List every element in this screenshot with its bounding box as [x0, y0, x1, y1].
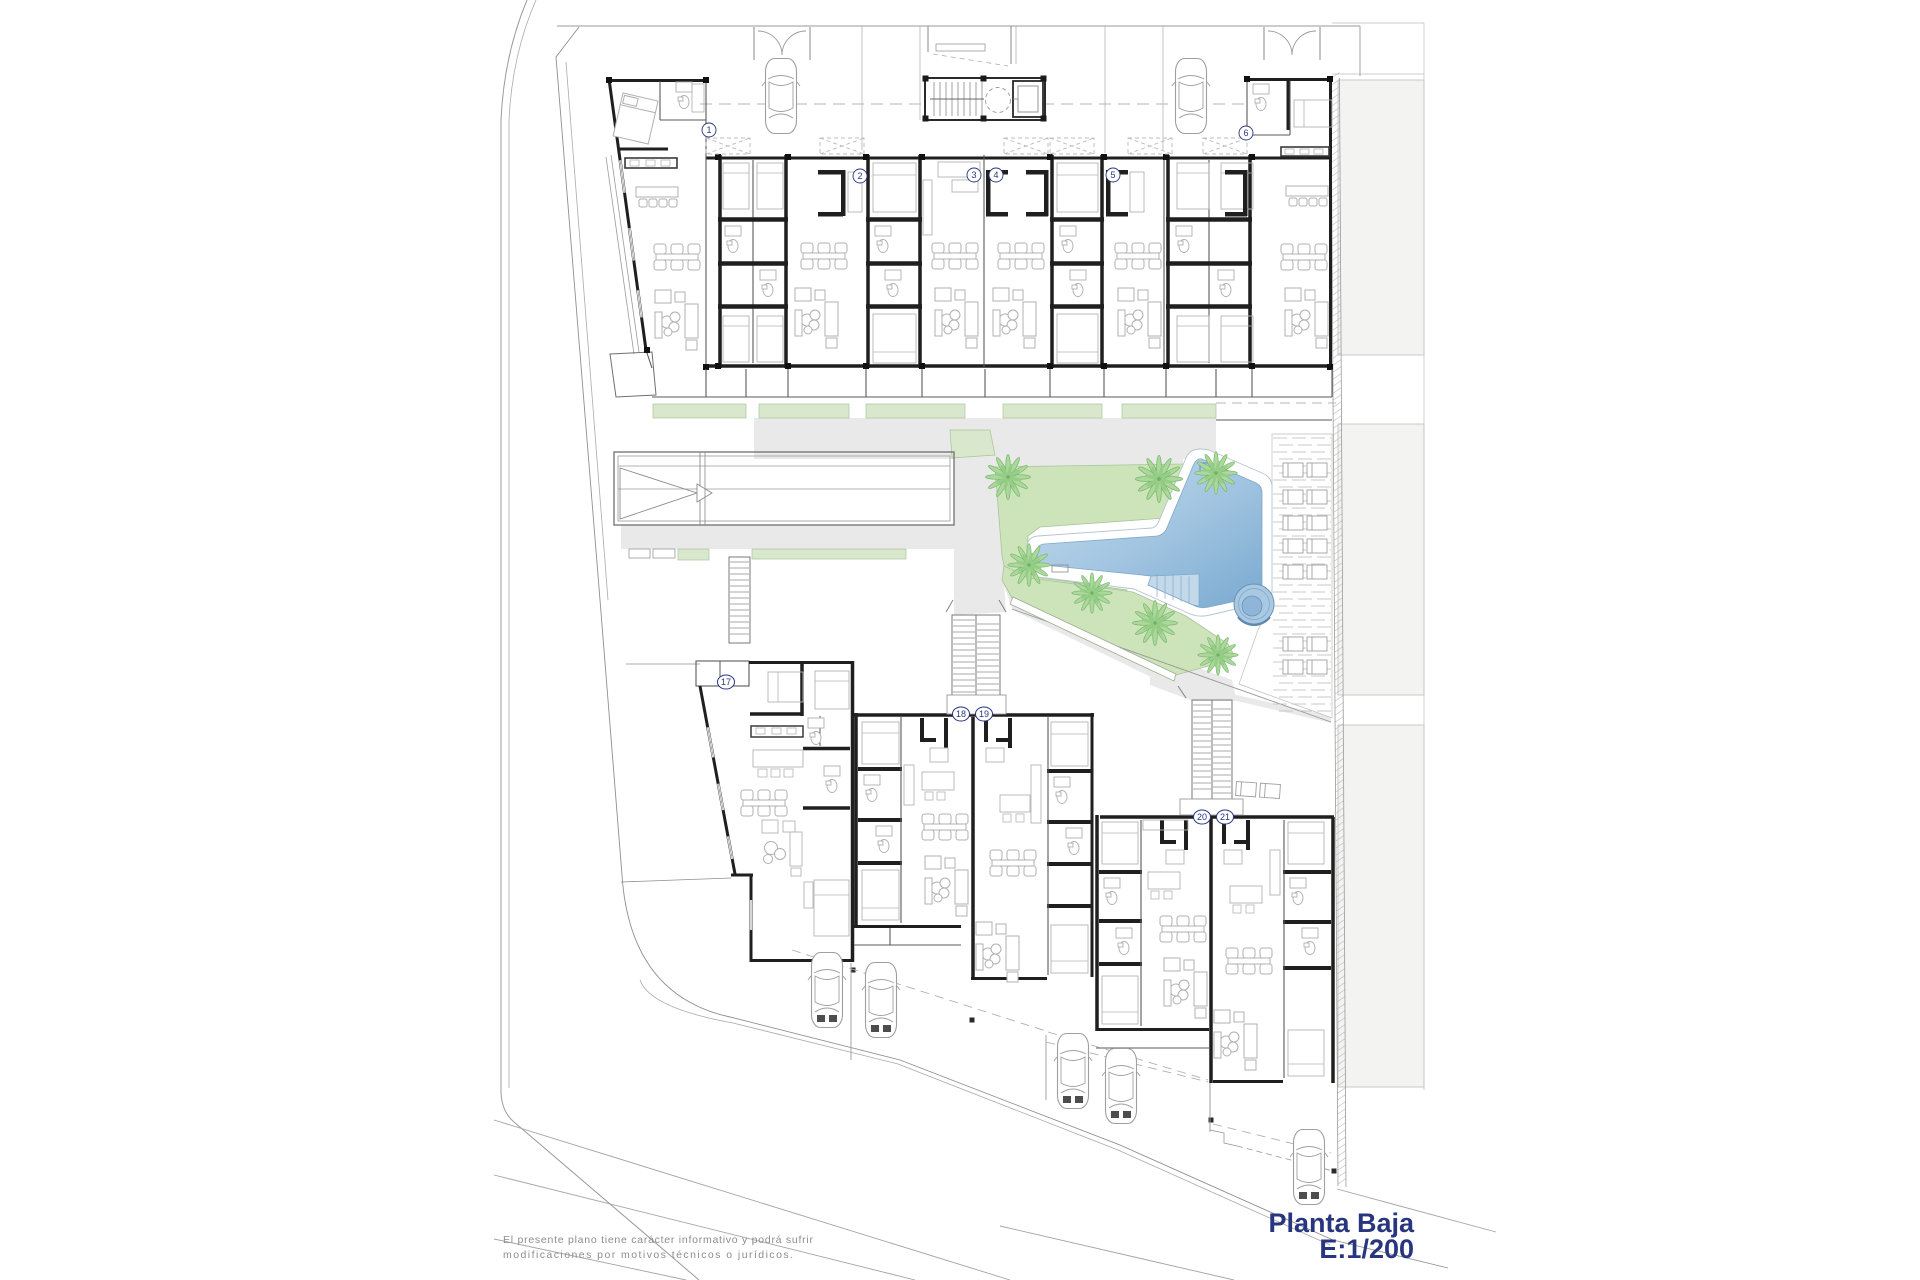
svg-text:El presente plano tiene caráct: El presente plano tiene carácter informa…: [503, 1234, 814, 1246]
svg-text:2: 2: [857, 171, 862, 181]
svg-text:20: 20: [1197, 812, 1207, 822]
svg-text:5: 5: [1110, 170, 1115, 180]
svg-text:18: 18: [956, 709, 966, 719]
svg-text:4: 4: [993, 170, 998, 180]
svg-text:modificaciones por motivos téc: modificaciones por motivos técnicos o ju…: [503, 1249, 793, 1261]
svg-text:1: 1: [706, 125, 711, 135]
svg-text:6: 6: [1243, 128, 1248, 138]
svg-text:17: 17: [721, 677, 731, 687]
svg-text:E:1/200: E:1/200: [1319, 1234, 1414, 1264]
svg-text:19: 19: [979, 709, 989, 719]
svg-text:21: 21: [1220, 812, 1230, 822]
svg-text:3: 3: [971, 170, 976, 180]
